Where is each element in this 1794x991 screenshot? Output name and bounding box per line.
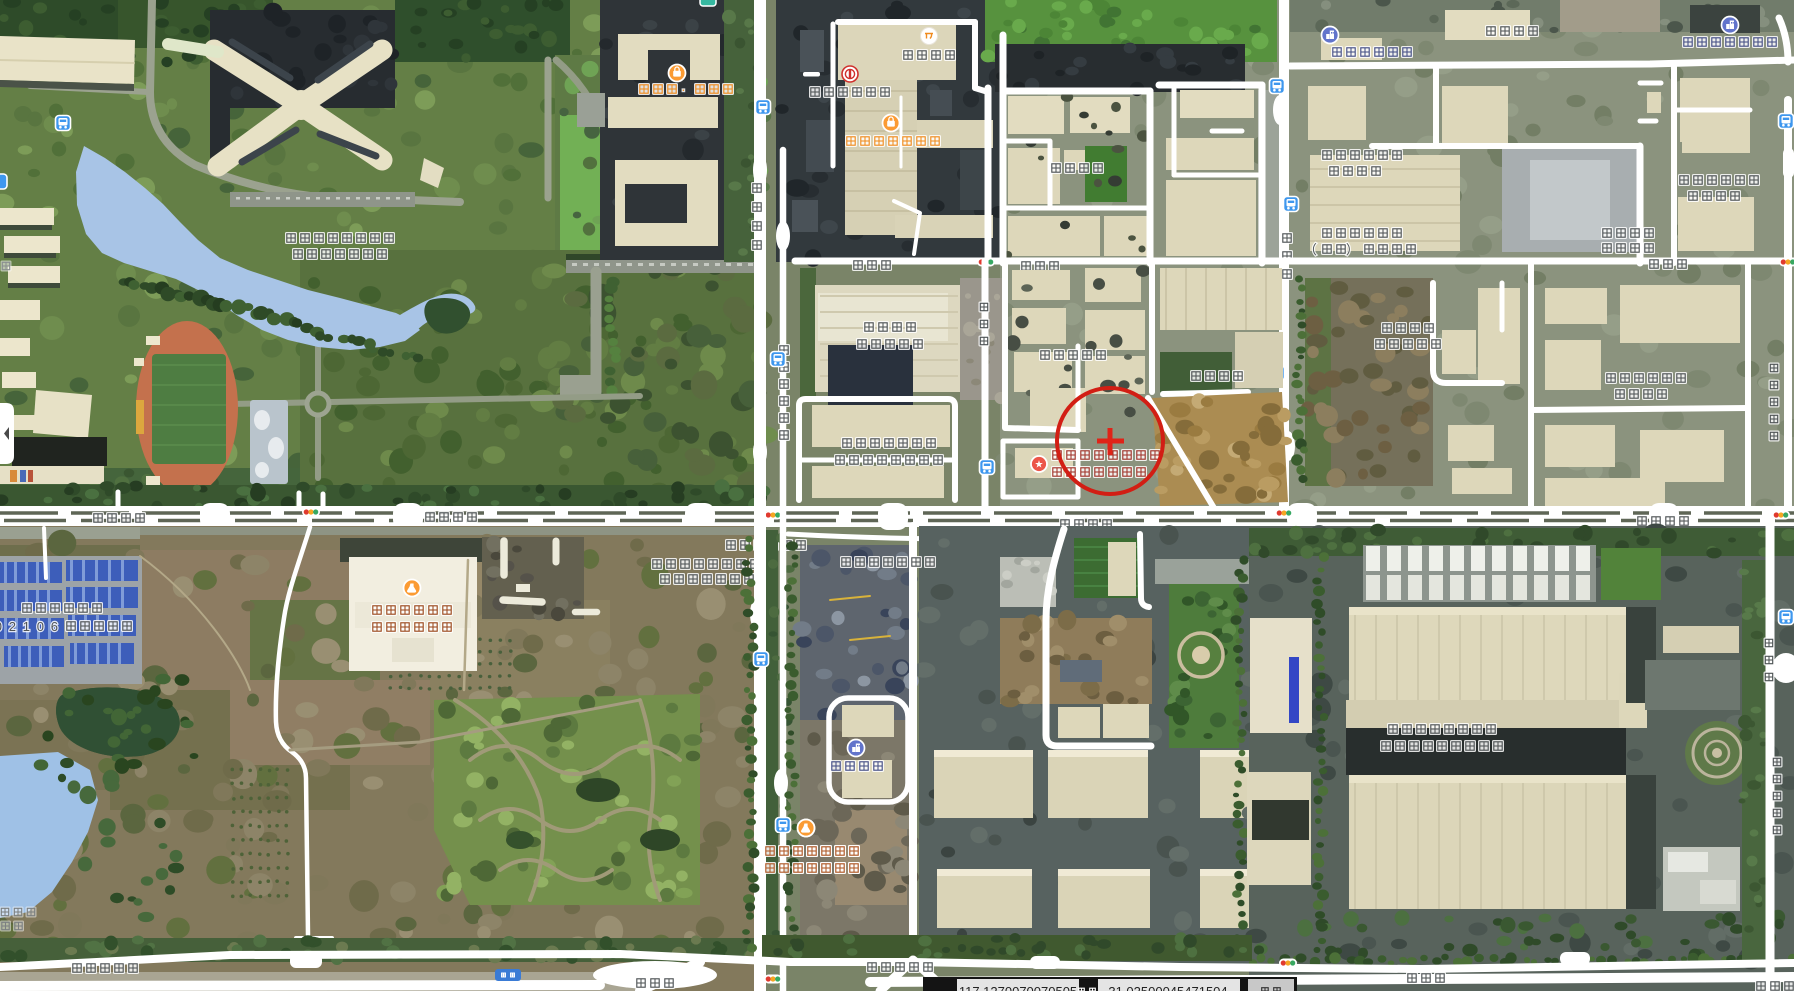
svg-text:★: ★	[1035, 460, 1044, 471]
svg-text:0: 0	[0, 619, 2, 634]
svg-text:6: 6	[51, 619, 58, 634]
svg-text:·: ·	[681, 82, 685, 97]
svg-text:117.1270070070505: 117.1270070070505	[959, 984, 1077, 991]
svg-text:0: 0	[37, 619, 44, 634]
svg-text:2: 2	[9, 619, 16, 634]
svg-text:31.02500045471504: 31.02500045471504	[1108, 984, 1227, 991]
svg-text:）: ）	[1346, 242, 1359, 257]
svg-text:（: （	[1304, 242, 1317, 257]
svg-text:1: 1	[23, 619, 30, 634]
